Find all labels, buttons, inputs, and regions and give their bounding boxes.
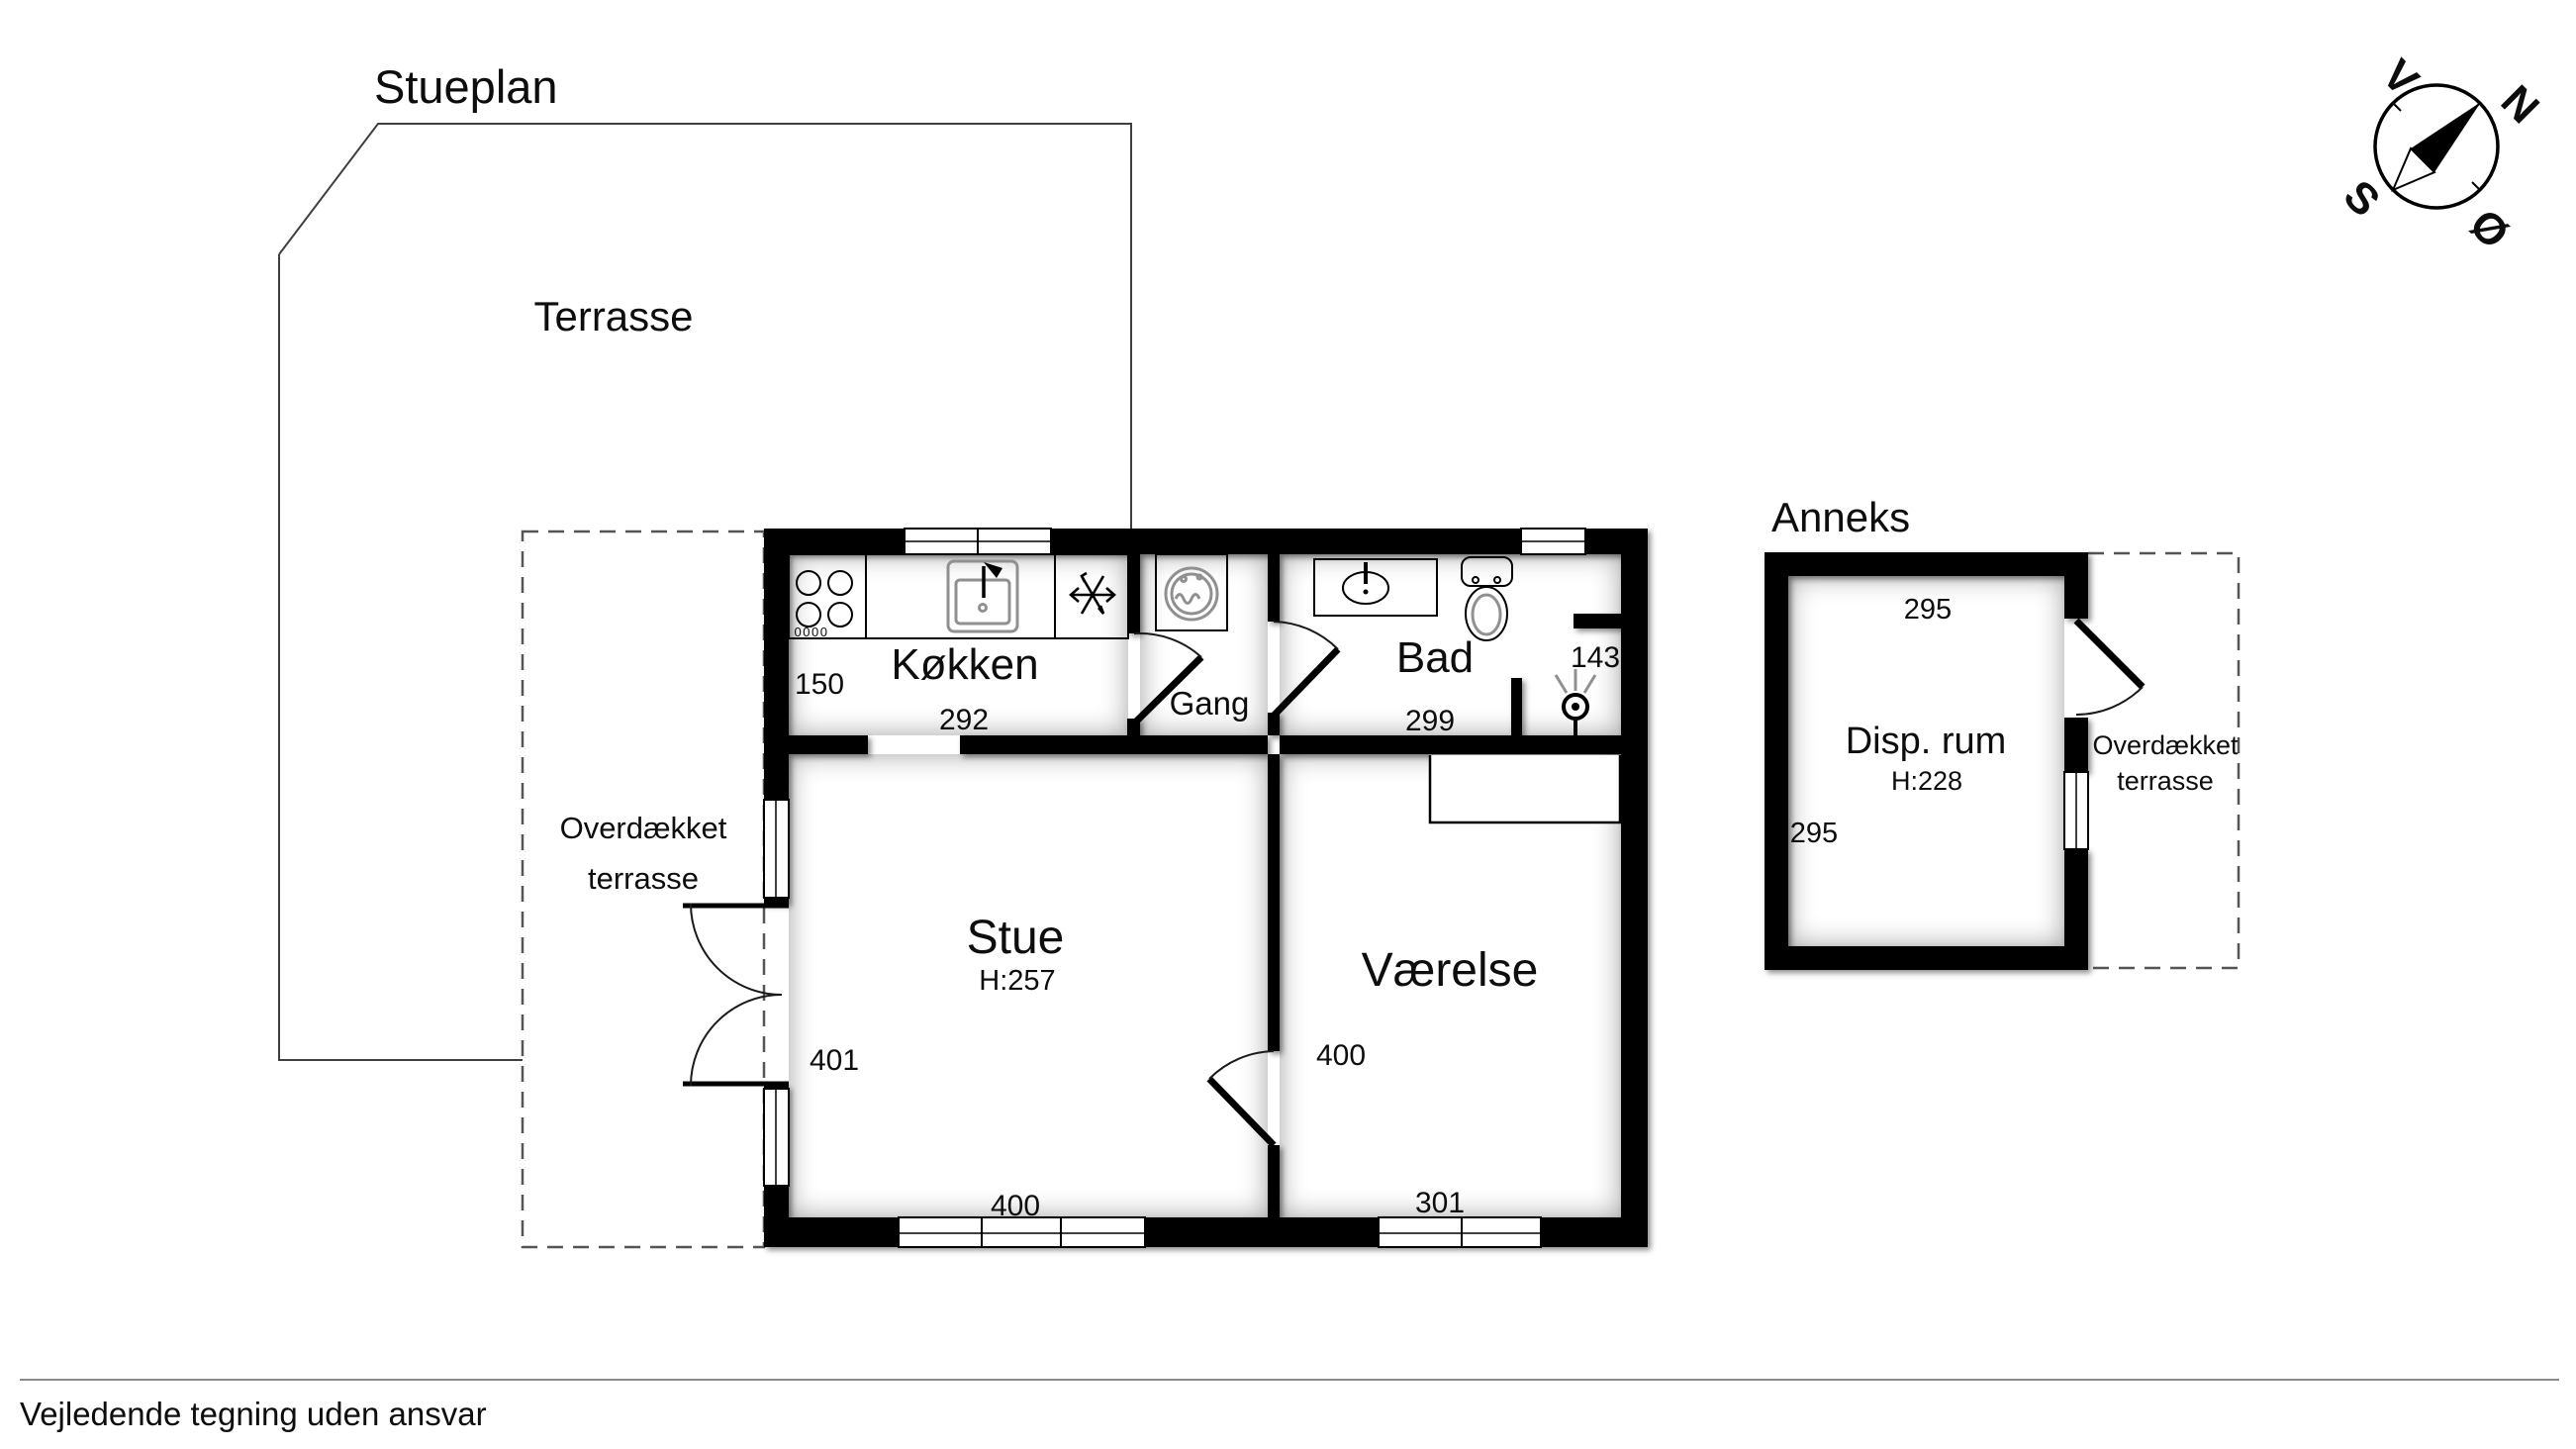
- annex-wall-right-upper: [2064, 552, 2088, 619]
- covered-terrace-label-line1: Overdækket: [560, 811, 727, 845]
- faucet-lever: [984, 562, 1002, 578]
- door-annex-exterior: [2076, 621, 2143, 715]
- wall-shower-stub-h: [1574, 614, 1621, 628]
- cooktop-icon: [797, 571, 852, 627]
- living-label: Stue: [967, 912, 1065, 964]
- annex-room-label: Disp. rum: [1846, 721, 2007, 762]
- annex-covered-terrace-line2: terrasse: [2117, 766, 2214, 796]
- cooktop-knobs: 0000: [795, 625, 829, 639]
- window-kitchen-top: [905, 529, 1051, 554]
- annex-wall-bottom: [1765, 946, 2088, 970]
- window-annex-right: [2064, 772, 2088, 849]
- compass-label-north: N: [2492, 76, 2548, 133]
- compass-label-west: V: [2373, 50, 2429, 106]
- bedroom-closet-icon: [1430, 755, 1620, 822]
- living-dim-side: 401: [810, 1044, 859, 1077]
- annex-wall-top: [1765, 552, 2088, 576]
- terrace-outline-left: [279, 254, 523, 1060]
- french-door-living: [683, 904, 789, 1086]
- shower-head-icon: [1556, 669, 1595, 735]
- window-bath-top: [1521, 529, 1585, 554]
- footer-disclaimer: Vejledende tegning uden ansvar: [20, 1396, 487, 1432]
- bedroom-dim-door: 400: [1316, 1039, 1366, 1072]
- wall-top: [764, 529, 1648, 554]
- bath-dim-shower: 143: [1571, 641, 1620, 674]
- living-dim-width: 400: [991, 1190, 1040, 1222]
- wall-hall-bath: [1268, 554, 1280, 622]
- bath-sink-icon: [1314, 559, 1437, 616]
- washing-machine-icon: [1156, 554, 1227, 630]
- covered-terrace-label-line2: terrasse: [588, 861, 699, 896]
- annex-wall-right-lower: [2064, 849, 2088, 970]
- bath-label: Bad: [1396, 633, 1474, 682]
- annex-wall-left: [1765, 552, 1788, 970]
- kitchen-sink-icon: [948, 561, 1017, 631]
- bedroom-dim-width: 301: [1415, 1187, 1465, 1219]
- wall-kitchen-stub: [1128, 554, 1140, 633]
- hall-label: Gang: [1170, 685, 1250, 722]
- annex-wall-right-mid: [2064, 718, 2088, 772]
- toilet-icon: [1462, 557, 1512, 640]
- wall-interior-h3: [1280, 735, 1621, 754]
- freezer-snowflake-icon: [1071, 573, 1114, 614]
- footer: Vejledende tegning uden ansvar: [20, 1380, 2559, 1432]
- kitchen-counter: [789, 554, 1128, 638]
- bedroom-label: Værelse: [1362, 944, 1539, 997]
- door-hall-bath: [1274, 622, 1338, 716]
- floor-plan-canvas: V N S Ø Stueplan Terrasse Overdækket ter…: [0, 0, 2576, 1449]
- window-living-left-lower: [764, 1089, 789, 1186]
- wall-interior-h1: [789, 735, 868, 754]
- annex-covered-terrace-dashed-boundary: [2088, 553, 2239, 968]
- wall-living-bedroom-lower: [1268, 1145, 1280, 1217]
- wall-living-bedroom-upper: [1268, 754, 1280, 1051]
- window-living-left-upper: [764, 800, 789, 898]
- annex-covered-terrace-line1: Overdækket: [2092, 730, 2239, 760]
- door-living-bedroom: [1209, 1051, 1274, 1145]
- compass-label-east: Ø: [2460, 200, 2519, 258]
- terrace-label: Terrasse: [533, 293, 693, 339]
- doors: [683, 621, 2143, 1145]
- page-title: Stueplan: [374, 60, 558, 113]
- annex-title: Anneks: [1771, 494, 1910, 540]
- floor-plan-drawing: V N S Ø Stueplan Terrasse Overdækket ter…: [0, 0, 2576, 1449]
- wall-shower-stub-v: [1511, 678, 1522, 735]
- annex-dim-side: 295: [1790, 818, 1838, 849]
- kitchen-label: Køkken: [891, 640, 1038, 689]
- terrace-outline-top: [279, 124, 1131, 529]
- wall-interior-h2: [960, 735, 1268, 754]
- annex-dim-top: 295: [1904, 594, 1952, 626]
- bath-dim-width: 299: [1405, 705, 1455, 737]
- kitchen-dim-width: 292: [939, 704, 989, 736]
- living-ceiling-height: H:257: [979, 965, 1055, 997]
- labels: Stueplan Terrasse Overdækket terrasse Kø…: [374, 60, 2239, 1222]
- window-bedroom-bottom: [1379, 1217, 1541, 1247]
- compass-label-south: S: [2335, 171, 2389, 226]
- annex-ceiling-height: H:228: [1891, 766, 1962, 796]
- kitchen-dim-side: 150: [795, 668, 844, 701]
- wall-right: [1621, 529, 1648, 1247]
- compass-rose: V N S Ø: [2335, 50, 2548, 258]
